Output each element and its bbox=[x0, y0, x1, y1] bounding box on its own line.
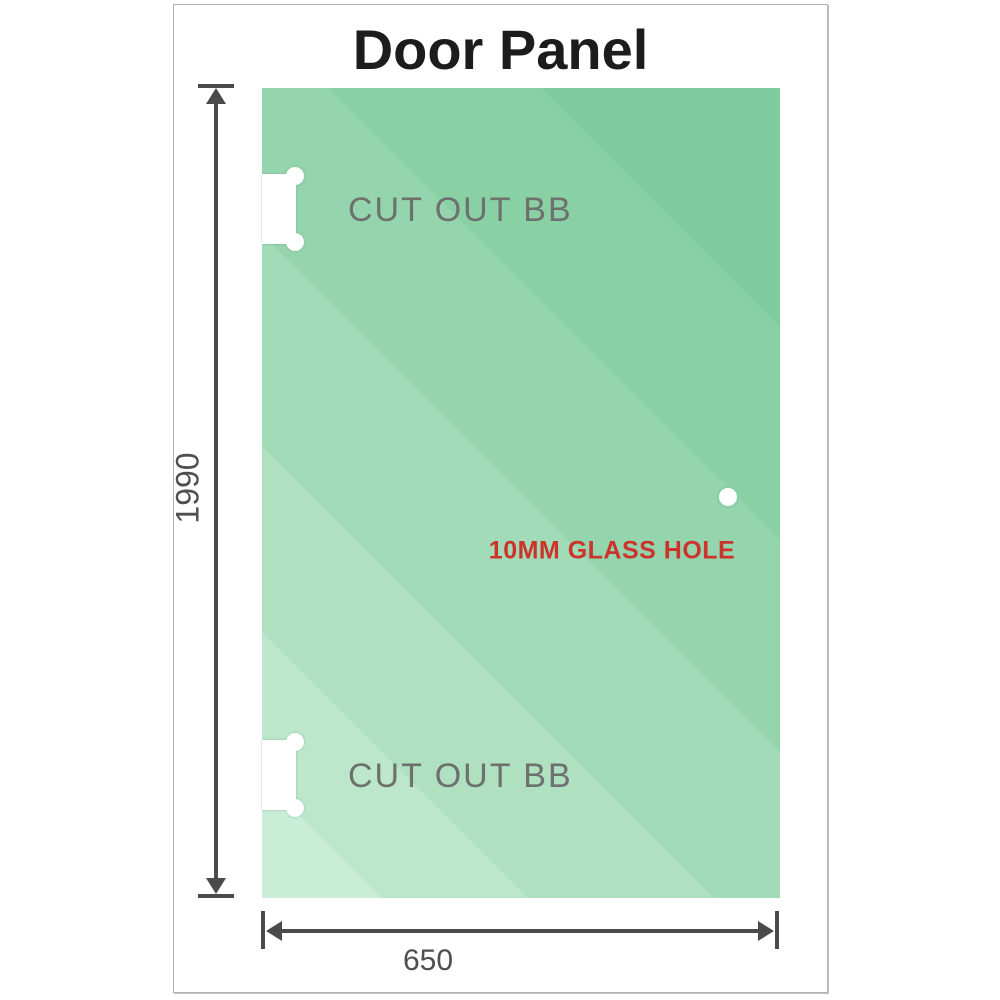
height-dim-line bbox=[214, 95, 218, 887]
width-dim-tick-right bbox=[775, 911, 779, 949]
height-dim-arrow-down-icon bbox=[206, 878, 226, 894]
height-dim-arrow-up-icon bbox=[206, 88, 226, 104]
width-dim-line bbox=[280, 929, 760, 933]
cutout-bottom-label: CUT OUT BB bbox=[348, 757, 648, 796]
cutout-top-label: CUT OUT BB bbox=[348, 191, 648, 230]
width-dim-arrow-right-icon bbox=[758, 921, 774, 941]
door-panel-diagram: Door Panel CUT OUT BB CUT OUT BB 10MM GL… bbox=[0, 0, 1000, 1000]
width-dimension-label: 650 bbox=[403, 944, 453, 978]
width-dim-arrow-left-icon bbox=[266, 921, 282, 941]
page-title: Door Panel bbox=[173, 17, 828, 82]
glass-hole bbox=[719, 488, 737, 506]
width-dim-tick-left bbox=[261, 911, 265, 949]
hinge-cutout-bottom bbox=[262, 733, 306, 817]
hinge-cutout-top bbox=[262, 167, 306, 251]
cutout-notch bbox=[262, 174, 296, 244]
height-dim-cap-bottom bbox=[198, 894, 234, 898]
cutout-notch bbox=[262, 740, 296, 810]
glass-hole-label: 10MM GLASS HOLE bbox=[489, 537, 735, 566]
height-dimension-label: 1990 bbox=[170, 452, 207, 523]
